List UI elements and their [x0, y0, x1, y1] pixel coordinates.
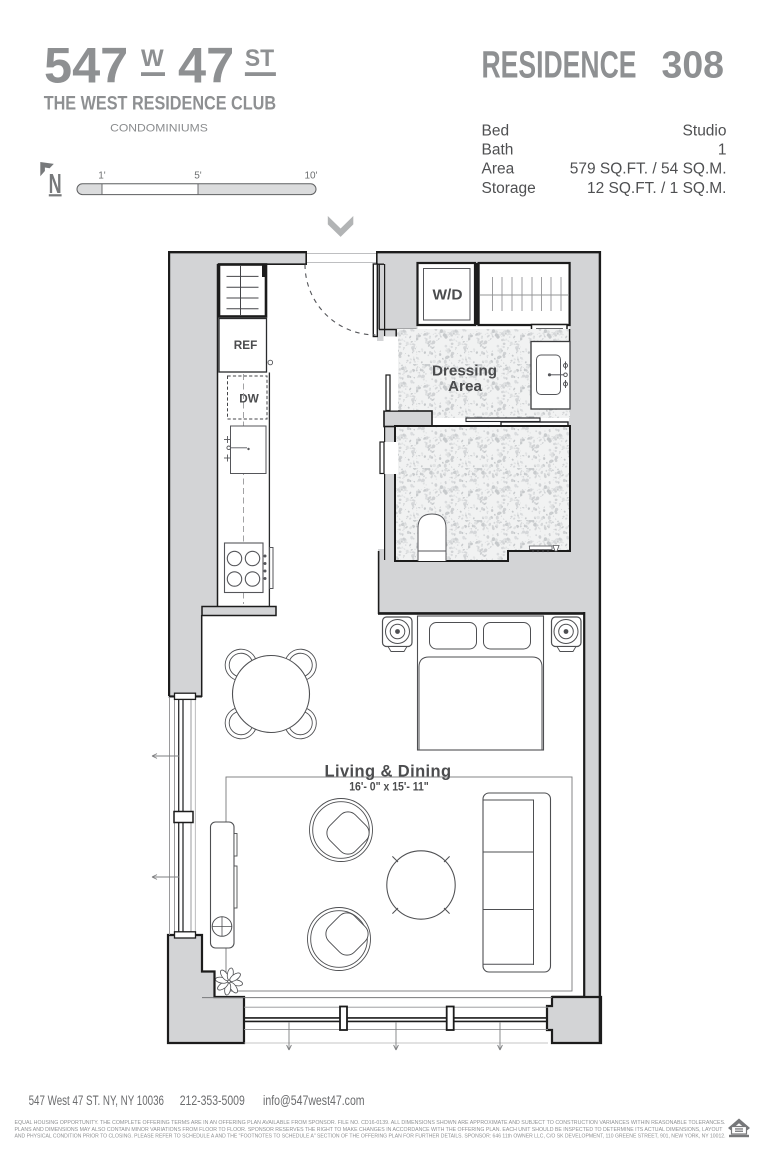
- svg-text:16'- 0" x 15'- 11": 16'- 0" x 15'- 11": [349, 781, 429, 794]
- svg-text:308: 308: [662, 45, 725, 87]
- svg-text:547 West 47 ST. NY, NY 10036: 547 West 47 ST. NY, NY 10036: [29, 1093, 164, 1108]
- svg-text:RESIDENCE: RESIDENCE: [482, 45, 637, 87]
- svg-text:Area: Area: [482, 161, 515, 178]
- svg-text:CONDOMINIUMS: CONDOMINIUMS: [110, 123, 208, 135]
- svg-text:547: 547: [44, 37, 128, 94]
- svg-text:REF: REF: [234, 340, 258, 352]
- svg-text:Studio: Studio: [683, 123, 727, 140]
- svg-text:W: W: [141, 45, 164, 72]
- svg-text:W/D: W/D: [433, 287, 463, 304]
- svg-text:47: 47: [178, 37, 234, 94]
- svg-text:Bed: Bed: [482, 123, 510, 140]
- svg-text:212-353-5009: 212-353-5009: [180, 1093, 245, 1108]
- svg-text:PLANS AND DIMENSIONS MAY ALSO: PLANS AND DIMENSIONS MAY ALSO CONTAIN MI…: [15, 1127, 724, 1133]
- svg-text:5': 5': [194, 171, 202, 182]
- svg-text:info@547west47.com: info@547west47.com: [263, 1093, 365, 1108]
- svg-text:Dressing: Dressing: [432, 364, 497, 380]
- svg-text:THE WEST RESIDENCE CLUB: THE WEST RESIDENCE CLUB: [44, 93, 276, 114]
- svg-text:12 SQ.FT. / 1 SQ.M.: 12 SQ.FT. / 1 SQ.M.: [587, 180, 727, 197]
- svg-text:Storage: Storage: [482, 180, 536, 197]
- svg-text:AND PHYSICAL CONDITION PRIOR T: AND PHYSICAL CONDITION PRIOR TO CLOSING.…: [15, 1134, 726, 1140]
- svg-text:Area: Area: [448, 379, 483, 395]
- svg-text:Living & Dining: Living & Dining: [325, 763, 452, 781]
- svg-text:579 SQ.FT. / 54 SQ.M.: 579 SQ.FT. / 54 SQ.M.: [570, 161, 727, 178]
- svg-text:Bath: Bath: [482, 142, 514, 159]
- svg-text:ST: ST: [245, 45, 275, 72]
- svg-text:10': 10': [304, 171, 317, 182]
- svg-text:N: N: [49, 168, 62, 199]
- svg-text:1': 1': [98, 171, 106, 182]
- svg-text:EQUAL HOUSING OPPORTUNITY. THE: EQUAL HOUSING OPPORTUNITY. THE COMPLETE …: [15, 1120, 726, 1126]
- svg-text:1: 1: [718, 142, 727, 159]
- svg-text:DW: DW: [239, 394, 259, 406]
